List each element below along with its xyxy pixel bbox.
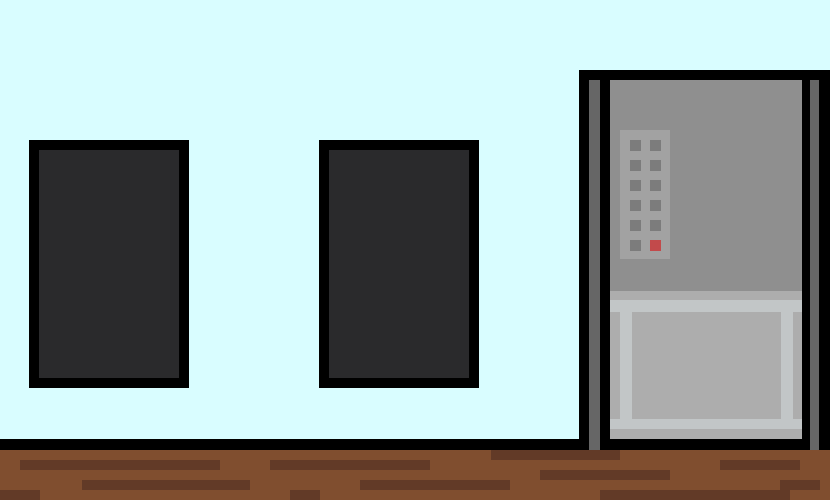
keypad-button-r3c1[interactable] — [630, 180, 641, 191]
machine-frame-left-inner — [600, 80, 610, 450]
floor-plank-streak — [82, 480, 250, 490]
keypad-button-r1c2[interactable] — [650, 140, 661, 151]
machine-top-bar — [579, 70, 830, 80]
keypad-button-r5c2[interactable] — [650, 220, 661, 231]
floor-plank-streak — [600, 490, 790, 500]
machine-frame-right-strip — [810, 80, 819, 450]
floor-plank-streak — [290, 490, 320, 500]
window-left-glass[interactable] — [39, 150, 179, 378]
keypad-button-r1c1[interactable] — [630, 140, 641, 151]
machine-frame-right-outer — [819, 70, 830, 450]
window-right-glass[interactable] — [329, 150, 469, 378]
keypad-button-r4c1[interactable] — [630, 200, 641, 211]
floor-plank-streak — [540, 470, 670, 480]
keypad-panel — [620, 130, 670, 259]
machine-frame-right-inner — [802, 80, 810, 450]
keypad-button-r4c2[interactable] — [650, 200, 661, 211]
floor-plank-streak — [720, 460, 800, 470]
machine-door-frame-right — [781, 300, 793, 429]
floor-plank-streak — [360, 480, 510, 490]
machine-door-frame-bottom — [610, 419, 802, 429]
machine-frame-left-outer — [579, 70, 589, 450]
keypad-button-r2c2[interactable] — [650, 160, 661, 171]
machine-door-frame-left — [620, 300, 632, 429]
game-scene — [0, 0, 830, 500]
machine-frame-left-strip — [589, 80, 600, 450]
floor-plank-streak — [270, 460, 430, 470]
keypad-button-r2c1[interactable] — [630, 160, 641, 171]
floor-top-edge — [0, 439, 830, 450]
keypad-button-red[interactable] — [650, 240, 661, 251]
floor-plank-streak — [780, 480, 820, 490]
machine-lower-door[interactable] — [610, 291, 802, 439]
keypad-button-r5c1[interactable] — [630, 220, 641, 231]
machine-door-frame-top — [610, 300, 802, 312]
floor-plank-streak — [20, 460, 220, 470]
floor-plank-streak — [0, 490, 40, 500]
keypad-button-r6c1[interactable] — [630, 240, 641, 251]
keypad-button-r3c2[interactable] — [650, 180, 661, 191]
floor-plank-streak — [491, 450, 620, 460]
